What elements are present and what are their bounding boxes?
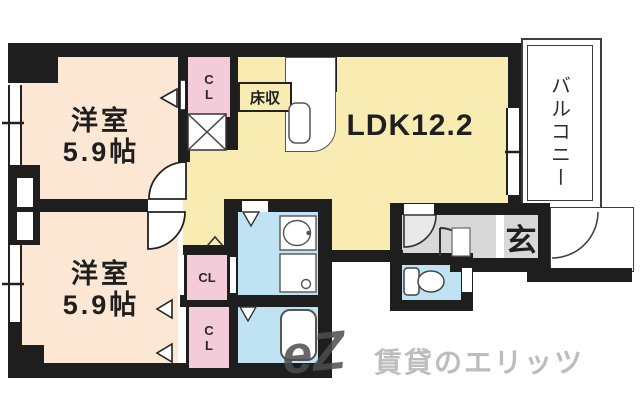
room1-name: 洋室 bbox=[71, 106, 131, 137]
closet-middle-label: CL bbox=[198, 270, 215, 285]
wall bbox=[8, 43, 58, 83]
kitchen-counter bbox=[285, 57, 336, 152]
wall-niche bbox=[17, 212, 33, 240]
entrance-label-text: 玄 bbox=[506, 215, 537, 260]
wall bbox=[224, 199, 332, 212]
closet-middle: CL bbox=[184, 252, 230, 303]
floor-storage-label: 床収 bbox=[250, 87, 280, 108]
ldk-lower-jog bbox=[332, 203, 390, 250]
entrance-porch bbox=[550, 207, 634, 272]
closet-top-label: CL bbox=[202, 72, 217, 102]
balcony-label-text: バルコニー bbox=[545, 75, 574, 190]
floor-plan: CL CL CL 床収 bbox=[0, 0, 640, 416]
window bbox=[506, 108, 521, 195]
floor-storage-box: 床収 bbox=[238, 82, 292, 112]
door-gap bbox=[242, 201, 268, 212]
entrance-label: 玄 bbox=[502, 216, 540, 258]
room2-name: 洋室 bbox=[71, 259, 131, 290]
wall bbox=[40, 199, 148, 212]
wall-niche bbox=[17, 178, 33, 207]
closet-top: CL bbox=[185, 54, 233, 120]
wall bbox=[508, 193, 521, 215]
door-gap bbox=[462, 268, 472, 292]
wall bbox=[390, 300, 473, 311]
washroom-floor bbox=[237, 212, 318, 295]
window bbox=[8, 85, 22, 165]
watermark-logo-glyphs: eZ bbox=[279, 320, 348, 386]
room2-label: 洋室 5.9帖 bbox=[28, 258, 174, 322]
watermark-text-glyphs: 賃貸のエリッツ bbox=[374, 347, 584, 378]
ldk-label-text: LDK12.2 bbox=[346, 109, 473, 143]
wall bbox=[237, 295, 318, 307]
room2-size: 5.9帖 bbox=[63, 290, 140, 321]
watermark-logo: eZ bbox=[279, 319, 348, 387]
room1-label: 洋室 5.9帖 bbox=[28, 105, 174, 169]
wall bbox=[508, 57, 521, 110]
wall bbox=[22, 345, 44, 363]
watermark-text: 賃貸のエリッツ bbox=[374, 341, 584, 381]
door-gap bbox=[404, 204, 434, 215]
window bbox=[8, 245, 22, 322]
ldk-label: LDK12.2 bbox=[330, 106, 490, 146]
closet-bottom-label: CL bbox=[202, 323, 217, 353]
wall bbox=[527, 268, 632, 282]
closet-bottom: CL bbox=[186, 304, 232, 371]
balcony-label: バルコニー bbox=[544, 58, 574, 206]
room1-size: 5.9帖 bbox=[63, 137, 140, 168]
wall bbox=[8, 43, 521, 57]
